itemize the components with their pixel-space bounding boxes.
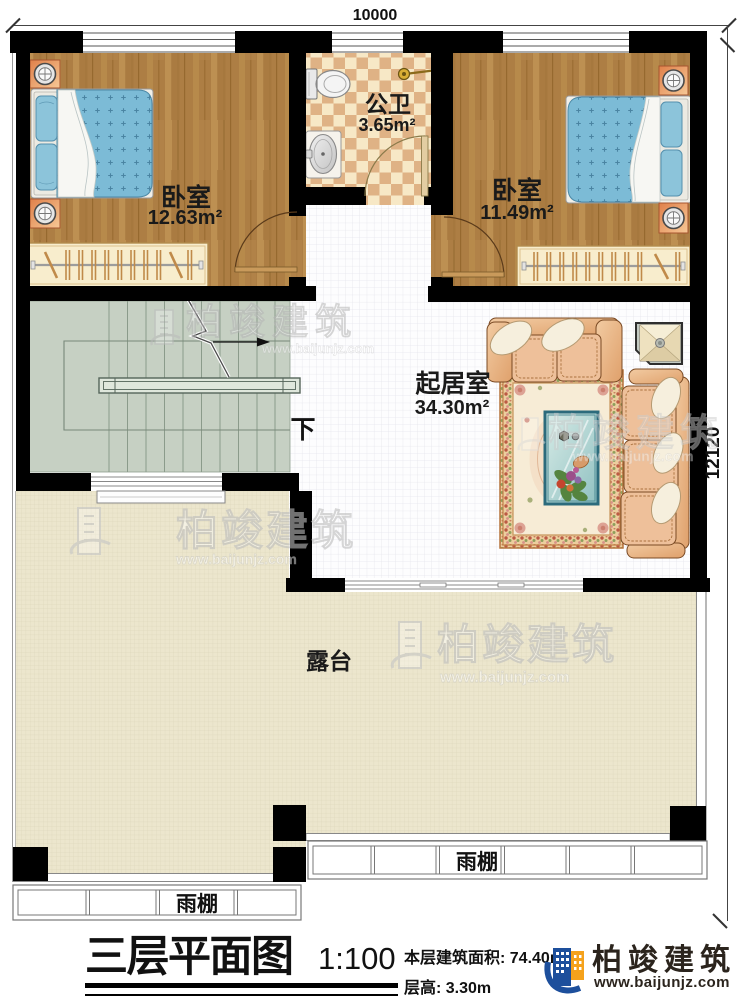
svg-text:雨棚: 雨棚 xyxy=(176,892,218,916)
svg-text:雨棚: 雨棚 xyxy=(456,850,498,874)
svg-text:层高: 3.30m: 层高: 3.30m xyxy=(404,978,491,997)
svg-text:三层平面图: 三层平面图 xyxy=(85,933,293,981)
svg-text:公卫: 公卫 xyxy=(365,91,411,117)
svg-text:www.baijunjz.com: www.baijunjz.com xyxy=(261,341,374,356)
svg-text:柏竣建筑: 柏竣建筑 xyxy=(186,301,358,342)
svg-text:10000: 10000 xyxy=(353,7,398,24)
svg-text:www.baijunjz.com: www.baijunjz.com xyxy=(572,448,694,464)
svg-text:露台: 露台 xyxy=(306,648,352,674)
svg-text:柏竣建筑: 柏竣建筑 xyxy=(437,621,617,668)
svg-text:11.49m²: 11.49m² xyxy=(480,202,554,224)
svg-text:起居室: 起居室 xyxy=(415,369,490,398)
svg-text:本层建筑面积: 74.40m²: 本层建筑面积: 74.40m² xyxy=(404,948,569,967)
svg-text:卧室: 卧室 xyxy=(492,176,542,205)
svg-text:www.baijunjz.com: www.baijunjz.com xyxy=(175,551,297,567)
svg-text:www.baijunjz.com: www.baijunjz.com xyxy=(593,974,730,991)
svg-text:下: 下 xyxy=(290,416,315,444)
svg-text:12.63m²: 12.63m² xyxy=(148,207,223,229)
svg-text:3.65m²: 3.65m² xyxy=(358,115,415,135)
svg-text:柏竣建筑: 柏竣建筑 xyxy=(592,943,736,977)
svg-text:www.baijunjz.com: www.baijunjz.com xyxy=(439,669,569,686)
svg-text:34.30m²: 34.30m² xyxy=(415,397,490,419)
svg-text:1:100: 1:100 xyxy=(318,941,396,976)
svg-text:柏竣建筑: 柏竣建筑 xyxy=(176,507,356,554)
